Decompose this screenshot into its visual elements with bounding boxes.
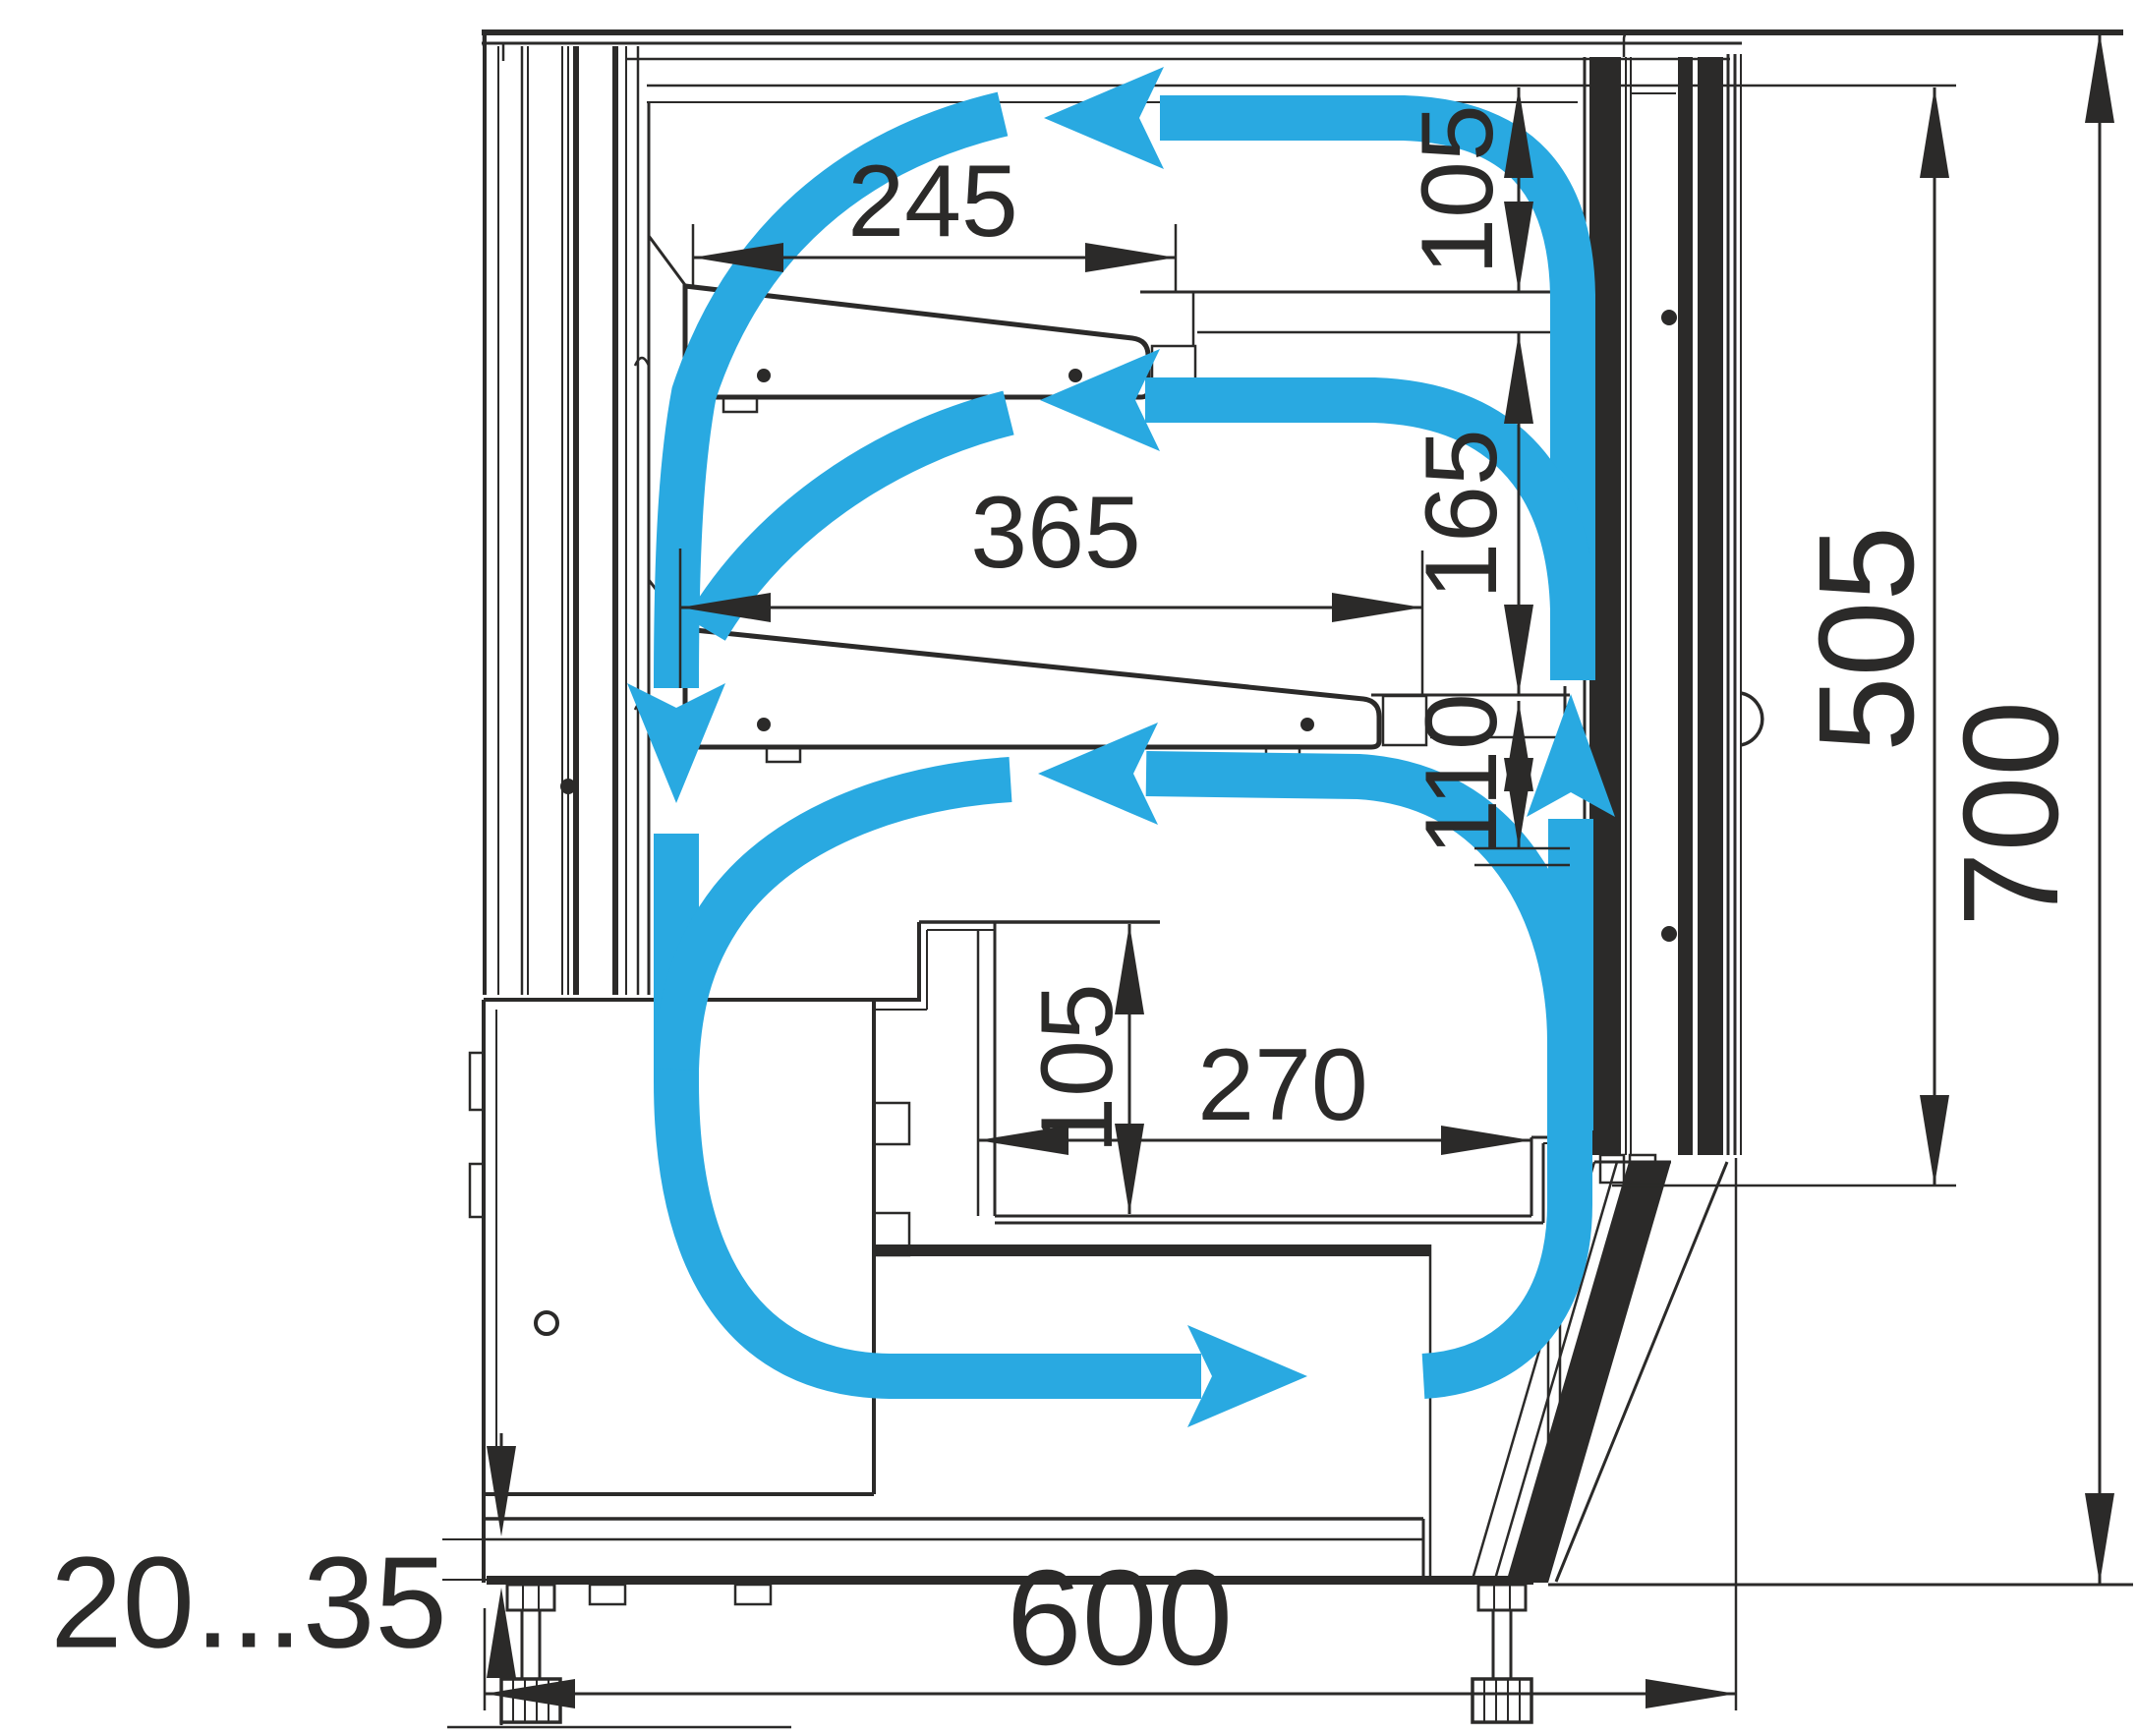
dim-label-105-well: 105 (1020, 983, 1134, 1154)
glass-screw-dot (1661, 310, 1677, 325)
drawing-canvas: 245 105 365 165 110 105 (0, 0, 2137, 1736)
shelf-screw-dot (757, 369, 771, 382)
dim-label-leg-adjust: 20...35 (50, 1531, 447, 1675)
dim-leg-adjust: 20...35 (50, 1433, 516, 1725)
airflow-return-arc-lower (676, 780, 1011, 1070)
shelf-screw-dot (1068, 369, 1082, 382)
dim-label-270: 270 (1197, 1028, 1368, 1142)
glass-screw-dot (1661, 926, 1677, 942)
dim-105-well: 105 (1020, 924, 1144, 1214)
base-plinth (442, 1519, 1533, 1604)
dim-label-110: 110 (1405, 693, 1519, 856)
dim-505: 505 (1612, 87, 1956, 1186)
top-panel (482, 29, 2123, 102)
dim-label-600: 600 (1007, 1542, 1233, 1694)
dim-label-505: 505 (1791, 526, 1942, 752)
dim-label-245: 245 (847, 145, 1018, 259)
dim-700: 700 (1935, 32, 2114, 1584)
air-well (874, 922, 1594, 1576)
glass-front-panel (1585, 54, 1762, 1183)
dim-label-700: 700 (1935, 701, 2087, 927)
compartment-hole (536, 1312, 557, 1334)
airflow-top-arrowhead (1044, 67, 1164, 169)
airflow-bottom-arrowhead (1187, 1325, 1307, 1427)
display-case-section-diagram: 245 105 365 165 110 105 (0, 0, 2137, 1736)
wall-screw-dot (560, 779, 576, 794)
shelf-screw-dot (1300, 718, 1314, 731)
glass-handle-bump (1741, 693, 1762, 745)
dim-105-top: 105 (1401, 87, 1533, 292)
dim-label-365: 365 (970, 476, 1141, 590)
shelf-screw-dot (757, 718, 771, 731)
dim-label-165: 165 (1405, 429, 1519, 600)
foot-right (1473, 1585, 1531, 1722)
dim-label-105-top: 105 (1401, 104, 1515, 275)
